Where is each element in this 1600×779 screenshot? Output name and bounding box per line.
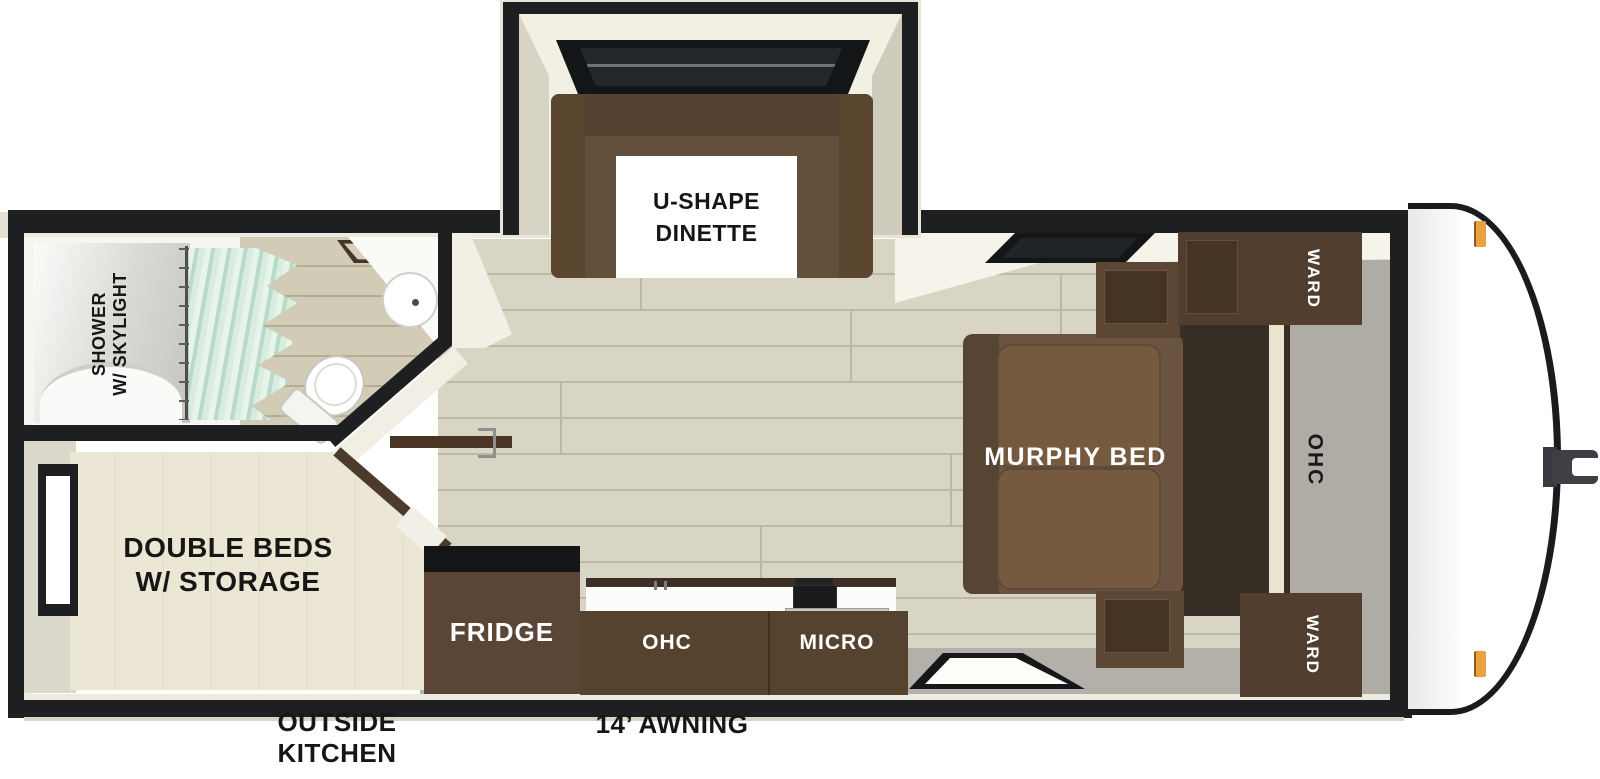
wall-top-left: [8, 210, 516, 233]
murphy-label-wrap: MURPHY BED: [958, 444, 1193, 471]
shower-label-wrap: SHOWER W/ SKYLIGHT: [28, 252, 192, 416]
plank-joint: [850, 311, 852, 381]
bath-wall-bottom: [8, 425, 338, 441]
awning-label-wrap: 14’ AWNING: [562, 708, 782, 740]
ward-bottom-label: WARD: [1302, 615, 1322, 675]
bedroom-label-line2: W/ STORAGE: [136, 566, 321, 598]
floor-plan: U-SHAPE DINETTE SHOWER W/ SKYLIGHT DOUB: [0, 0, 1600, 779]
dinette-sofa-arm: [551, 94, 585, 278]
murphy-sofa-cushion: [997, 468, 1161, 590]
awning-label: 14’ AWNING: [596, 709, 749, 740]
marker-light-top: [1474, 221, 1486, 247]
dinette-label: U-SHAPE DINETTE: [616, 156, 797, 278]
front-cap: [1408, 203, 1561, 715]
shower-label-line2: W/ SKYLIGHT: [110, 272, 131, 396]
ohc-label-wrap: OHC: [582, 630, 752, 656]
bedroom-label-line1: DOUBLE BEDS: [123, 532, 332, 564]
shower-label-line1: SHOWER: [89, 272, 110, 396]
ohc-front-label: OHC: [1302, 433, 1326, 486]
nightstand-bottom-panel: [1104, 599, 1170, 653]
wall-left: [8, 210, 24, 718]
plank-joint: [950, 455, 952, 525]
dinette-sofa-back: [551, 94, 873, 136]
hitch-coupler-notch: [1572, 458, 1600, 476]
wall-top-right: [895, 210, 1412, 233]
wardrobe-top-panel: [1186, 240, 1238, 314]
fridge-label-wrap: FRIDGE: [424, 617, 580, 647]
ohc-front-label-wrap: OHC: [1284, 412, 1344, 507]
fridge-label: FRIDGE: [450, 617, 554, 648]
outside-kitchen-line1: OUTSIDE: [277, 707, 396, 738]
sink-bowl: [382, 272, 438, 328]
bathroom-door-handle: [478, 428, 496, 458]
murphy-bed-board: [1269, 312, 1284, 612]
dinette-sofa-arm: [839, 94, 873, 278]
murphy-bed-label: MURPHY BED: [984, 443, 1167, 472]
faucet: [664, 581, 667, 590]
marker-light-bottom: [1474, 651, 1486, 677]
sink-drain: [412, 299, 419, 306]
outside-kitchen-label: OUTSIDE KITCHEN: [237, 708, 437, 768]
dinette-label-line2: DINETTE: [656, 220, 758, 247]
nightstand-top-panel: [1104, 270, 1168, 324]
kitchen-backsplash: [586, 578, 896, 587]
bedroom-label: DOUBLE BEDS W/ STORAGE: [68, 534, 388, 596]
micro-label: MICRO: [800, 631, 875, 655]
micro-label-wrap: MICRO: [752, 630, 922, 656]
cooktop-knobs: [795, 578, 833, 585]
bath-wall-stub: [438, 233, 454, 345]
plank-joint: [560, 383, 562, 453]
dinette-label-line1: U-SHAPE: [653, 188, 760, 215]
outside-kitchen-line2: KITCHEN: [277, 738, 396, 769]
ward-top-label-wrap: WARD: [1283, 232, 1343, 325]
ward-top-label: WARD: [1303, 249, 1323, 309]
ward-bottom-label-wrap: WARD: [1282, 598, 1342, 692]
bedroom-window-pane: [46, 476, 70, 604]
faucet: [654, 581, 657, 590]
dinette-window-pane: [580, 48, 842, 86]
kitchen-ohc-label: OHC: [642, 631, 692, 655]
roof-vent-inner: [1002, 238, 1138, 258]
